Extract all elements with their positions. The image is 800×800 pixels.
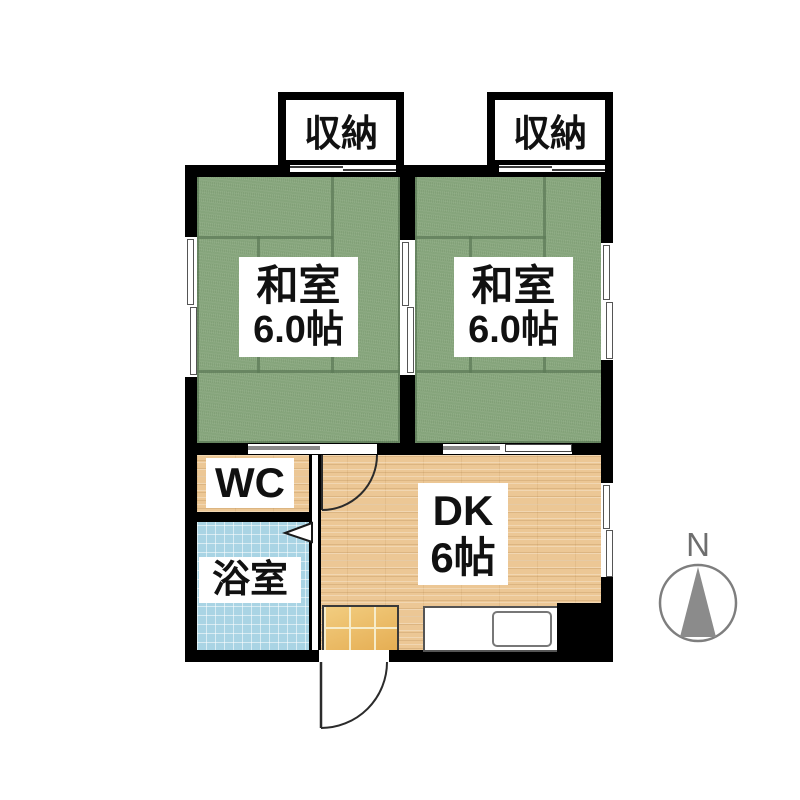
window-pane <box>603 245 610 300</box>
sliding-door-panel <box>402 242 409 306</box>
sliding-door-panel <box>248 446 320 450</box>
sliding-door-panel <box>499 166 552 168</box>
sliding-door-panel <box>443 446 500 450</box>
window-pane <box>187 239 194 305</box>
sliding-door-panel <box>290 166 343 168</box>
room-right-label: 和室 6.0帖 <box>454 257 573 357</box>
closet-left-sliding-door <box>290 165 396 172</box>
tatami-seam <box>415 370 603 373</box>
room-left-label: 和室 6.0帖 <box>239 257 358 357</box>
floor-plan: 収納 収納 和室 6.0帖 和室 6.0帖 WC <box>0 0 800 800</box>
room-right-name: 和室 <box>471 262 555 309</box>
window-pane <box>606 530 613 577</box>
wc-label: WC <box>206 458 294 508</box>
kitchen-sink <box>492 611 552 647</box>
closet-left: 収納 <box>278 92 404 168</box>
dk-label: DK 6帖 <box>418 483 508 585</box>
wall-wc-bath <box>185 512 315 522</box>
refrigerator-space-block <box>557 603 613 661</box>
entrance-door-swing-arc <box>321 662 387 728</box>
window-pane <box>606 302 613 359</box>
closet-right-label: 収納 <box>513 103 587 157</box>
tatami-seam <box>197 370 400 373</box>
compass-circle <box>660 565 736 641</box>
north-label: N <box>678 526 718 564</box>
window-pane <box>190 307 197 375</box>
entrance-doorway <box>319 650 389 662</box>
sliding-door-panel <box>343 169 396 171</box>
genkan-tile-floor <box>322 605 399 654</box>
sliding-door-panel <box>407 307 414 373</box>
closet-right-sliding-door <box>499 165 605 172</box>
wall-right <box>601 165 613 662</box>
room-left-size: 6.0帖 <box>253 309 344 352</box>
tatami-seam <box>197 236 333 239</box>
closet-right: 収納 <box>487 92 613 168</box>
closet-left-label: 収納 <box>304 103 378 157</box>
room-left-name: 和室 <box>256 262 340 309</box>
compass-needle-icon <box>680 567 716 637</box>
sliding-door-panel <box>552 169 605 171</box>
room-right-size: 6.0帖 <box>468 309 559 352</box>
dk-size: 6帖 <box>430 534 495 581</box>
sliding-door-panel <box>505 444 572 452</box>
bath-label: 浴室 <box>199 557 301 603</box>
window-pane <box>603 485 610 529</box>
wall-wc-dk <box>309 455 321 650</box>
tatami-seam <box>415 236 546 239</box>
dk-name: DK <box>433 487 494 534</box>
